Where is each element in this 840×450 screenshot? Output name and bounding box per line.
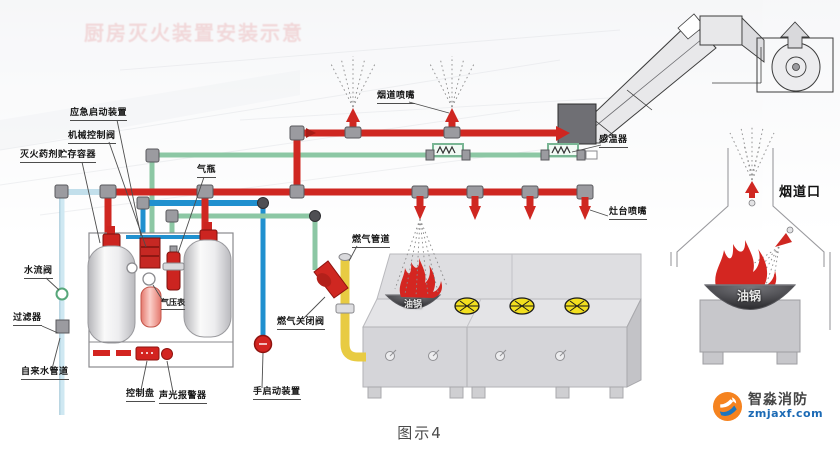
fire-swoosh-icon bbox=[712, 391, 743, 422]
water-flow-valve-icon bbox=[57, 289, 68, 300]
label-control-panel: 控制盘 bbox=[126, 390, 155, 402]
wok-right-label: 油锅 bbox=[737, 287, 761, 304]
filter-icon bbox=[56, 320, 69, 333]
stove bbox=[363, 254, 641, 398]
label-filter: 过滤器 bbox=[13, 314, 42, 326]
label-agent-storage-container: 灭火药剂贮存容器 bbox=[20, 151, 96, 163]
label-stove-nozzle: 灶台喷嘴 bbox=[609, 208, 647, 220]
label-water-flow-valve: 水流阀 bbox=[24, 267, 53, 279]
gas-pipe bbox=[314, 254, 366, 358]
label-flue-nozzle: 烟道喷嘴 bbox=[377, 92, 415, 104]
label-emergency-start: 应急启动装置 bbox=[70, 109, 127, 121]
label-tap-water-pipe: 自来水管道 bbox=[21, 368, 69, 380]
label-pressure-gauge: 气压表 bbox=[161, 299, 185, 310]
burner-icons bbox=[455, 298, 589, 314]
manual-start-icon bbox=[255, 336, 272, 353]
kitchen-fire-suppression-diagram: 厨房灭火装置安装示意 应急启动装置 机械控制阀 灭火药剂贮存容器 气瓶 水流阀 … bbox=[0, 0, 840, 450]
label-manual-start: 手启动装置 bbox=[253, 388, 301, 400]
mechanical-control-valve-icon bbox=[140, 238, 160, 268]
agent-cylinder bbox=[88, 246, 135, 343]
agent-cylinder bbox=[184, 240, 231, 337]
control-panel-icon bbox=[136, 347, 159, 360]
logo-url: zmjaxf.com bbox=[748, 408, 823, 420]
figure-caption: 图示4 bbox=[397, 422, 443, 443]
wok-left-label: 油锅 bbox=[404, 297, 422, 310]
logo-name: 智淼消防 bbox=[748, 393, 823, 408]
watermark-title: 厨房灭火装置安装示意 bbox=[84, 17, 304, 46]
zhimiao-logo: 智淼消防 zmjaxf.com bbox=[712, 391, 823, 422]
label-gas-shutoff-valve: 燃气关闭阀 bbox=[277, 318, 325, 330]
pressure-gauge-icon bbox=[143, 273, 155, 285]
label-flue-opening: 烟道口 bbox=[779, 181, 821, 200]
label-sound-light-alarm: 声光报警器 bbox=[159, 392, 207, 404]
diagram-canvas bbox=[0, 0, 840, 450]
sound-light-alarm-icon bbox=[162, 349, 173, 360]
label-mechanical-control-valve: 机械控制阀 bbox=[68, 132, 116, 144]
agent-cabinet bbox=[88, 222, 233, 367]
label-gas-cylinder: 气瓶 bbox=[197, 166, 216, 178]
label-gas-pipe: 燃气管道 bbox=[352, 236, 390, 248]
label-temp-sensor: 感温器 bbox=[599, 136, 628, 148]
